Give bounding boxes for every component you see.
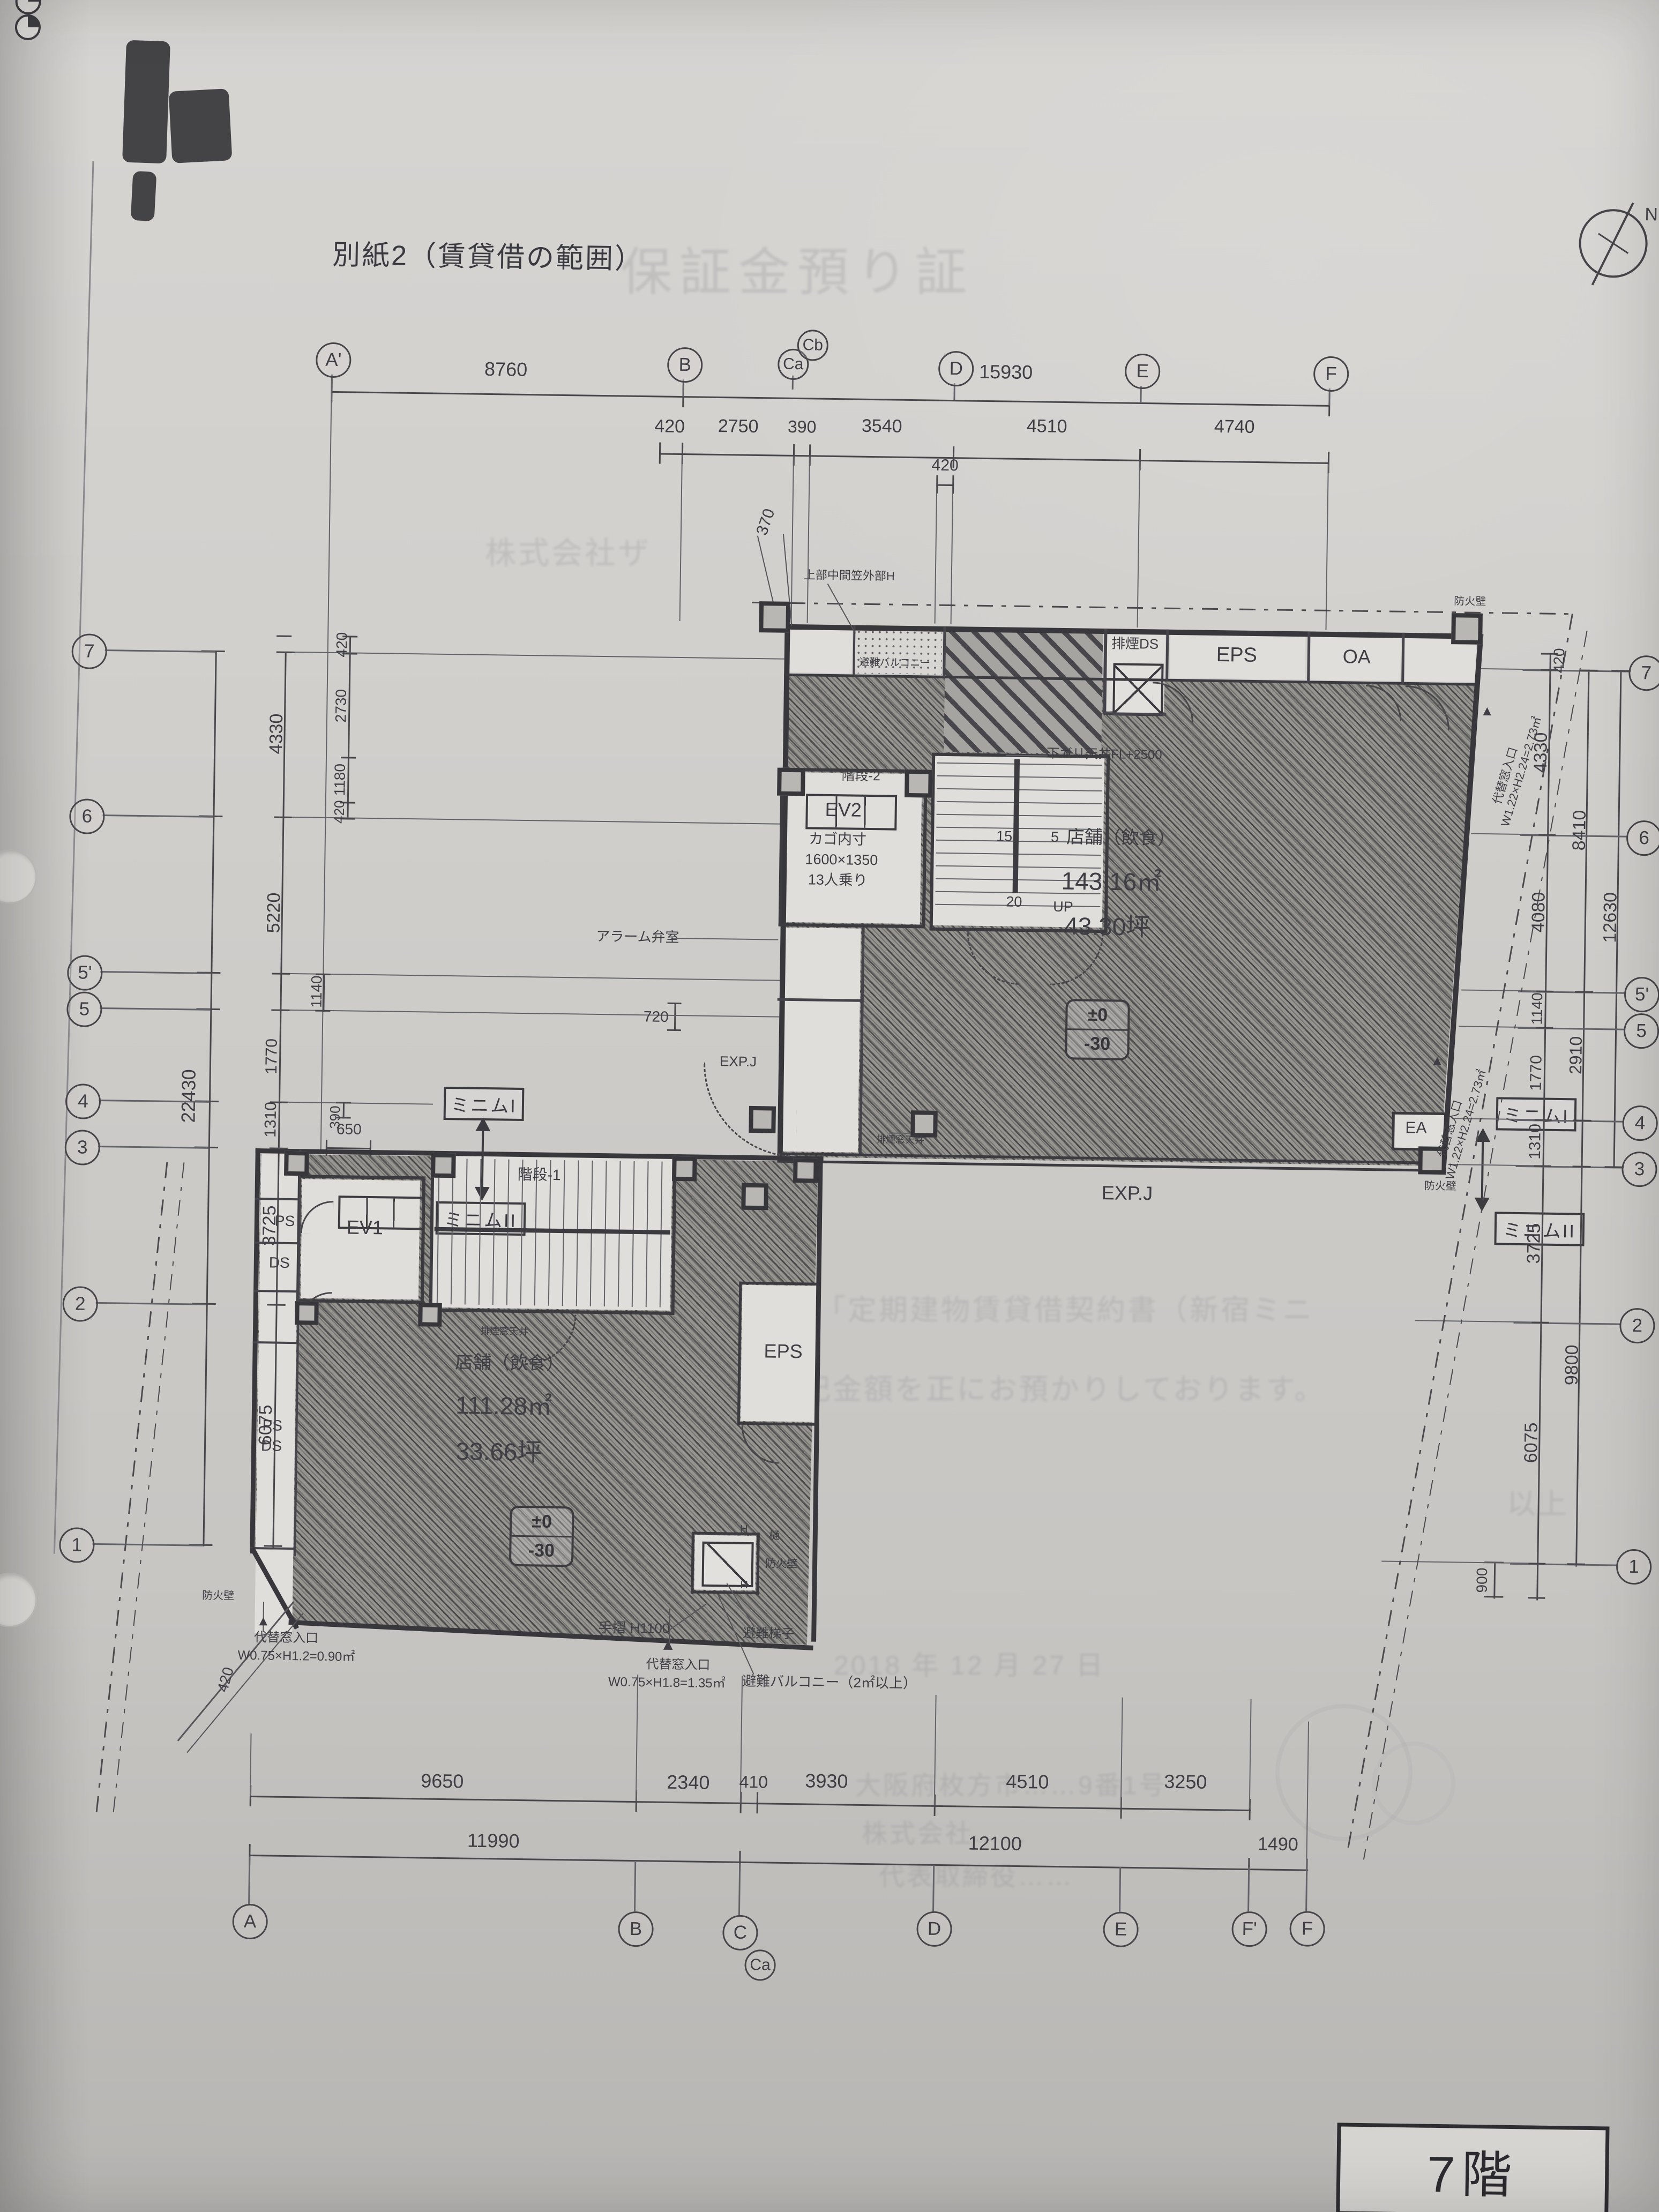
plan-line bbox=[1119, 1867, 1121, 1912]
vent-circle-icon bbox=[15, 14, 41, 41]
plan-line bbox=[756, 1533, 760, 1595]
plan-label: 12100 bbox=[968, 1833, 1022, 1855]
grid-bubble: C bbox=[722, 1915, 758, 1951]
plan-label: 避難バルコニー bbox=[859, 657, 930, 669]
scanned-floor-plan-page: 保証金預り証 株式会社ザ 件の「定期建物賃貸借契約書（新宿ミニ 記金額を正にお預… bbox=[0, 0, 1659, 2212]
plan-line bbox=[92, 1543, 203, 1546]
plan-line bbox=[1306, 1722, 1309, 1870]
plan-label: 5220 bbox=[264, 892, 283, 933]
plan-line bbox=[691, 1531, 694, 1594]
column-marker bbox=[1451, 613, 1483, 645]
column-marker bbox=[759, 601, 790, 633]
plan-line bbox=[272, 973, 290, 974]
grid-bubble: 3 bbox=[1621, 1152, 1657, 1187]
plan-line bbox=[281, 1010, 779, 1018]
plan-line bbox=[660, 453, 1328, 464]
plan-line bbox=[1538, 834, 1556, 835]
plan-label: 370 bbox=[753, 506, 778, 537]
plan-line bbox=[286, 652, 784, 660]
plan-line bbox=[1247, 1867, 1250, 1911]
grid-bubble: 6 bbox=[69, 798, 105, 834]
plan-line bbox=[671, 938, 778, 940]
plan-label: PS bbox=[275, 1213, 295, 1229]
grid-bubble: 5' bbox=[67, 955, 103, 991]
plan-line bbox=[435, 1227, 670, 1235]
plan-label: 420 bbox=[654, 416, 685, 436]
plan-line bbox=[98, 1146, 208, 1149]
boundary-line bbox=[288, 1620, 813, 1650]
door-arc bbox=[1365, 685, 1402, 721]
plan-label: 5 bbox=[1051, 829, 1059, 845]
plan-label: 9650 bbox=[421, 1770, 464, 1791]
plan-line bbox=[249, 1855, 1308, 1871]
plan-line bbox=[1165, 630, 1169, 681]
grid-bubble: F' bbox=[1231, 1911, 1267, 1947]
grid-bubble: D bbox=[938, 351, 974, 387]
plan-label: 11990 bbox=[467, 1830, 520, 1852]
plan-line bbox=[341, 757, 356, 758]
column-marker bbox=[910, 1110, 938, 1138]
plan-label: 15 bbox=[996, 828, 1012, 844]
grid-bubble: 1 bbox=[1616, 1549, 1652, 1585]
plan-label: 4080 bbox=[1529, 892, 1549, 932]
plan-label: 下ガリ天井FL+2500 bbox=[1047, 747, 1162, 762]
plan-label: 3250 bbox=[1164, 1772, 1207, 1792]
plan-line bbox=[316, 974, 331, 975]
plan-label: 1140 bbox=[1529, 992, 1545, 1025]
plan-line bbox=[679, 455, 683, 621]
plan-line bbox=[250, 1148, 260, 1553]
column-marker bbox=[284, 1151, 309, 1176]
plan-label: 1600×1350 bbox=[805, 851, 878, 868]
grid-bubble: 5 bbox=[1624, 1013, 1659, 1049]
plan-line bbox=[255, 1198, 300, 1200]
plan-label: 3540 bbox=[862, 416, 902, 436]
plan-label: DS bbox=[261, 1438, 282, 1454]
plan-label: 720 bbox=[644, 1008, 669, 1025]
plan-line bbox=[634, 1862, 636, 1911]
grid-bubble: D bbox=[916, 1911, 952, 1947]
plan-line bbox=[1249, 1699, 1252, 1809]
door-arc bbox=[301, 1200, 334, 1234]
plan-label: 防火壁 bbox=[1454, 596, 1486, 608]
plan-line bbox=[737, 1282, 742, 1425]
plan-line bbox=[1381, 1560, 1528, 1564]
plan-label: 43.30坪 bbox=[1064, 913, 1151, 940]
grid-bubble: 7 bbox=[71, 633, 107, 669]
plan-line bbox=[668, 1003, 682, 1004]
plan-label: 2730 bbox=[333, 689, 349, 723]
plan-line bbox=[1137, 461, 1140, 627]
plan-line bbox=[1307, 631, 1310, 683]
plan-label: 排煙窓天井 bbox=[480, 1326, 528, 1337]
grid-bubble: 6 bbox=[1626, 820, 1659, 856]
plan-line bbox=[738, 1864, 741, 1915]
plan-label: 階段-2 bbox=[841, 768, 880, 783]
plan-label: 2750 bbox=[718, 416, 759, 436]
plan-label: 階段-1 bbox=[517, 1167, 561, 1183]
plan-label: 店舗（飲食） bbox=[1066, 827, 1176, 848]
plan-line bbox=[248, 1857, 250, 1904]
boundary-line bbox=[54, 161, 94, 1554]
plan-label: 4740 bbox=[1214, 417, 1255, 437]
plan-label: 111.28㎡ bbox=[455, 1392, 552, 1419]
plan-label: H bbox=[740, 1524, 748, 1535]
door-arc bbox=[1050, 932, 1103, 986]
plan-label: DS bbox=[269, 1254, 290, 1271]
grid-bubble: 4 bbox=[65, 1083, 101, 1119]
boundary-line bbox=[113, 1162, 184, 1813]
plan-label: 防火壁 bbox=[765, 1558, 797, 1570]
plan-label: 排煙DS bbox=[1111, 636, 1159, 652]
plan-label: 避難バルコニー（2㎡以上） bbox=[742, 1674, 917, 1691]
grid-bubble: 5' bbox=[1624, 977, 1659, 1013]
plan-line bbox=[253, 1290, 298, 1292]
plan-line bbox=[280, 1102, 433, 1105]
plan-label: EV1 bbox=[346, 1217, 383, 1238]
plan-label: 420 bbox=[214, 1665, 236, 1694]
plan-line bbox=[739, 1282, 818, 1286]
grid-bubble: A' bbox=[316, 342, 352, 378]
grid-bubble: 7 bbox=[1628, 655, 1659, 691]
plan-line bbox=[100, 1007, 210, 1011]
drawing-layer: 別紙2（賃貸借の範囲） N bbox=[0, 0, 1659, 2212]
plan-line bbox=[935, 487, 938, 624]
column-marker bbox=[905, 769, 933, 798]
grid-bubble: 1 bbox=[59, 1527, 95, 1563]
plan-line bbox=[421, 1176, 425, 1304]
plan-label: 防火壁 bbox=[1424, 1181, 1456, 1193]
plan-label: 20 bbox=[1006, 894, 1022, 910]
plan-label: 1310 bbox=[1527, 1124, 1544, 1160]
plan-line bbox=[1579, 669, 1597, 671]
plan-label: カゴ内寸 bbox=[809, 831, 866, 847]
plan-line bbox=[105, 649, 215, 653]
plan-line bbox=[791, 457, 794, 623]
door-arc bbox=[1405, 685, 1450, 730]
plan-line bbox=[250, 1547, 295, 1550]
plan-line bbox=[1575, 991, 1593, 992]
plan-line bbox=[298, 1175, 425, 1179]
plan-label: 420 bbox=[931, 457, 959, 474]
plan-line bbox=[1513, 1322, 1620, 1325]
plan-line bbox=[757, 1792, 759, 1813]
plan-label: 12630 bbox=[1600, 892, 1620, 943]
column-marker bbox=[749, 1106, 776, 1133]
column-marker bbox=[295, 1301, 319, 1325]
plan-label: 390 bbox=[788, 418, 817, 437]
plan-line bbox=[1528, 1563, 1545, 1564]
plan-line bbox=[1013, 759, 1020, 893]
plan-line bbox=[271, 1009, 289, 1011]
plan-line bbox=[1536, 1027, 1553, 1028]
plan-label: 代替窓入口 bbox=[254, 1631, 318, 1645]
plan-line bbox=[1575, 671, 1589, 1567]
plan-line bbox=[283, 817, 782, 825]
plan-line bbox=[659, 442, 661, 464]
plan-line bbox=[779, 923, 924, 929]
grid-bubble: Ca bbox=[744, 1949, 776, 1981]
grid-bubble: E bbox=[1125, 354, 1161, 390]
plan-label: 上部中間笠外部H bbox=[804, 569, 895, 582]
plan-line bbox=[667, 1029, 681, 1031]
plan-line bbox=[102, 814, 213, 818]
plan-line bbox=[1567, 1563, 1585, 1565]
plan-label: 22430 bbox=[178, 1069, 199, 1123]
plan-label: EA bbox=[1405, 1119, 1426, 1137]
vent-circle-icon bbox=[15, 0, 41, 14]
grid-bubble: F bbox=[1313, 356, 1349, 392]
grid-bubble: 2 bbox=[62, 1286, 98, 1322]
plan-line bbox=[1531, 1321, 1549, 1323]
plan-label: 2910 bbox=[1567, 1036, 1586, 1075]
plan-line bbox=[320, 392, 332, 1151]
generated-drawing: 8760159304202750390354045104740420370224… bbox=[0, 0, 1659, 2212]
plan-label: 2340 bbox=[667, 1772, 710, 1793]
plan-line bbox=[270, 1147, 288, 1149]
plan-line bbox=[253, 1341, 298, 1344]
plan-label: 3930 bbox=[805, 1770, 848, 1791]
door-arc bbox=[966, 931, 1020, 985]
plan-line bbox=[1493, 1562, 1496, 1598]
plan-label: EV2 bbox=[825, 799, 862, 820]
plan-label: 樋 bbox=[769, 1530, 780, 1542]
plan-line bbox=[1528, 1597, 1545, 1598]
plan-line bbox=[274, 816, 292, 818]
boundary-line bbox=[95, 1162, 168, 1813]
plan-line bbox=[276, 636, 292, 637]
plan-line bbox=[1103, 629, 1107, 714]
plan-line bbox=[1573, 1165, 1591, 1167]
plan-label: W0.75×H1.2=0.90㎡ bbox=[237, 1649, 355, 1664]
plan-label: 手摺 H1100 bbox=[598, 1620, 670, 1636]
door-arc bbox=[741, 1425, 780, 1464]
plan-line bbox=[1535, 1119, 1552, 1120]
door-arc bbox=[1152, 682, 1194, 723]
plan-line bbox=[1536, 990, 1553, 992]
grid-bubble: 3 bbox=[64, 1130, 100, 1165]
plan-label: EXP.J bbox=[720, 1054, 757, 1070]
plan-line bbox=[811, 1156, 823, 1642]
plan-line bbox=[674, 1003, 676, 1031]
grid-bubble: 5 bbox=[66, 991, 102, 1027]
plan-line bbox=[1305, 1869, 1307, 1911]
grid-bubble: E bbox=[1103, 1911, 1139, 1947]
plan-label: ▲ bbox=[1430, 1053, 1444, 1068]
plan-label: EXP.J bbox=[1102, 1183, 1153, 1204]
plan-line bbox=[1573, 1119, 1591, 1121]
plan-line bbox=[281, 973, 780, 981]
plan-label: 4510 bbox=[1027, 416, 1067, 436]
plan-label: W0.75×H1.8=1.35㎡ bbox=[608, 1675, 726, 1690]
plan-label: 4510 bbox=[1006, 1772, 1049, 1792]
boundary-line bbox=[752, 602, 1572, 615]
plan-line bbox=[343, 1102, 345, 1118]
plan-line bbox=[203, 652, 216, 1546]
plan-label: ▲ bbox=[256, 1613, 270, 1628]
plan-line bbox=[315, 1010, 330, 1012]
plan-label: 8410 bbox=[1570, 810, 1589, 850]
column-marker bbox=[418, 1303, 442, 1327]
grid-bubble: Cb bbox=[797, 330, 828, 361]
plan-line bbox=[932, 1865, 935, 1911]
plan-label: 420 bbox=[332, 800, 347, 824]
plan-label: EPS bbox=[764, 1341, 803, 1362]
plan-line bbox=[267, 1304, 286, 1305]
plan-label: 420 bbox=[334, 632, 350, 657]
plan-label: 防火壁 bbox=[202, 1590, 234, 1602]
plan-line bbox=[1518, 1027, 1625, 1030]
plan-label: 143.16㎡ bbox=[1061, 868, 1161, 895]
boundary-line bbox=[1363, 631, 1588, 1860]
plan-label: 1140 bbox=[309, 975, 325, 1008]
plan-label: 店舗（飲食） bbox=[455, 1352, 564, 1373]
plan-line bbox=[784, 674, 1476, 686]
plan-label: 1770 bbox=[1528, 1055, 1545, 1091]
plan-label: 避難梯子 bbox=[743, 1627, 794, 1641]
plan-line bbox=[778, 998, 864, 1002]
plan-label: 650 bbox=[337, 1121, 362, 1137]
plan-line bbox=[256, 1148, 824, 1161]
plan-label: 排煙窓天井 bbox=[876, 1134, 924, 1145]
plan-line bbox=[1401, 633, 1404, 684]
plan-label: 3725 bbox=[1524, 1223, 1544, 1264]
plan-label: ▲ bbox=[660, 1636, 676, 1654]
plan-line bbox=[250, 1796, 1251, 1811]
plan-label: H bbox=[740, 1580, 748, 1591]
plan-line bbox=[1534, 1165, 1551, 1167]
plan-label: 9800 bbox=[1562, 1344, 1582, 1385]
grid-bubble: B bbox=[667, 347, 703, 383]
plan-label: 1490 bbox=[1258, 1834, 1298, 1854]
plan-label: OA bbox=[1343, 646, 1371, 667]
plan-label: 900 bbox=[1474, 1568, 1490, 1593]
plan-line bbox=[1605, 1166, 1624, 1168]
column-marker bbox=[777, 768, 805, 796]
grid-bubble: 2 bbox=[1619, 1308, 1655, 1344]
grid-bubble: A bbox=[232, 1904, 268, 1940]
plan-line bbox=[264, 1545, 282, 1546]
plan-line bbox=[943, 626, 946, 677]
plan-line bbox=[1611, 670, 1631, 672]
plan-line bbox=[336, 1102, 351, 1103]
plan-line bbox=[331, 391, 1329, 407]
plan-line bbox=[1325, 464, 1328, 630]
column-marker bbox=[431, 1153, 456, 1178]
plan-label: 410 bbox=[739, 1773, 768, 1792]
grid-bubble: F bbox=[1289, 1911, 1325, 1947]
column-marker bbox=[672, 1156, 697, 1182]
plan-label: 代替窓入口 bbox=[646, 1657, 710, 1672]
plan-label: 15930 bbox=[979, 362, 1033, 383]
plan-line bbox=[636, 1675, 638, 1801]
plan-label: 6075 bbox=[1521, 1422, 1541, 1463]
grid-bubble: 4 bbox=[1622, 1105, 1658, 1141]
plan-line bbox=[100, 971, 211, 974]
plan-label: ▲ bbox=[1480, 704, 1494, 719]
plan-label: 1180 bbox=[332, 764, 348, 796]
plan-line bbox=[276, 652, 295, 653]
plan-line bbox=[859, 928, 865, 1155]
column-marker bbox=[793, 1158, 818, 1183]
plan-label: 1770 bbox=[263, 1038, 281, 1074]
plan-label: 420 bbox=[1551, 648, 1567, 673]
plan-line bbox=[1120, 1698, 1123, 1808]
plan-line bbox=[934, 1695, 937, 1805]
plan-label: EPS bbox=[1216, 644, 1258, 666]
plan-line bbox=[951, 487, 954, 624]
plan-line bbox=[807, 457, 810, 623]
plan-line bbox=[691, 1590, 759, 1594]
plan-line bbox=[937, 484, 954, 486]
plan-label: PS bbox=[262, 1417, 282, 1433]
plan-line bbox=[692, 1531, 760, 1535]
plan-line bbox=[1510, 1563, 1617, 1566]
plan-label: アラーム弁室 bbox=[596, 929, 679, 945]
plan-line bbox=[1484, 1596, 1503, 1598]
grid-bubble: B bbox=[618, 1911, 654, 1947]
column-marker bbox=[741, 1183, 768, 1210]
boundary-line bbox=[667, 1604, 706, 1632]
plan-label: 33.66坪 bbox=[455, 1438, 542, 1466]
plan-label: 1310 bbox=[262, 1102, 280, 1138]
plan-line bbox=[1516, 1119, 1624, 1123]
plan-label: 13人乗り bbox=[808, 872, 868, 888]
plan-label: 8760 bbox=[484, 359, 528, 380]
plan-label: 4330 bbox=[266, 713, 286, 754]
